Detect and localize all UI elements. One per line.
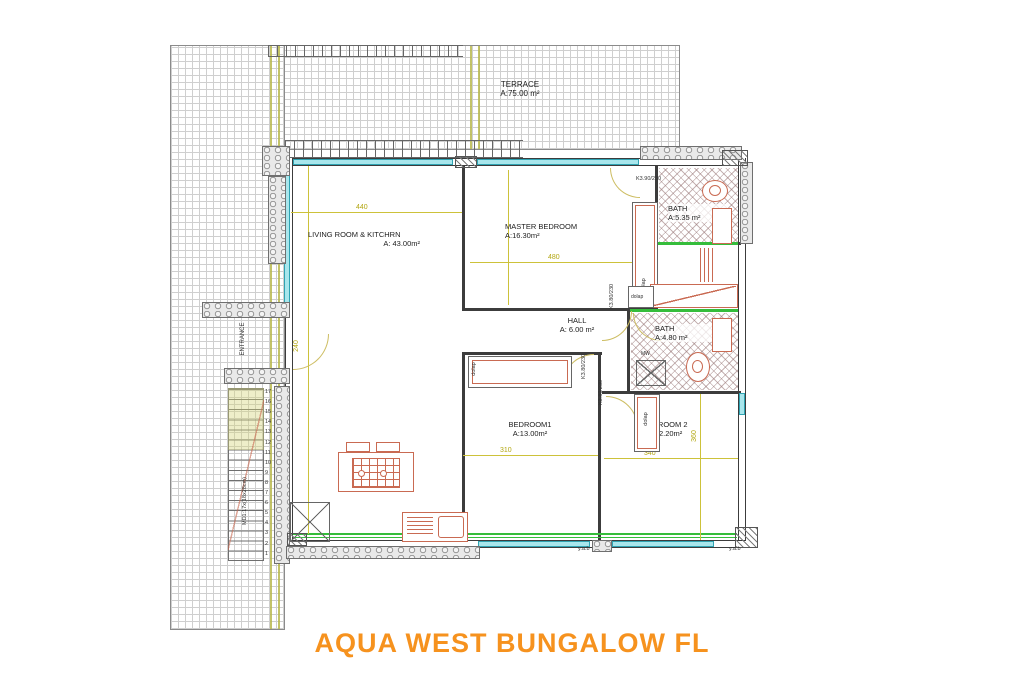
stair-step-number: 11 bbox=[265, 450, 275, 456]
stone-entrance-top bbox=[202, 302, 290, 318]
yab-label-left: y.a.b bbox=[578, 546, 590, 552]
dim-living-width: 440 bbox=[356, 204, 368, 212]
bedroom1-name: BEDROOM1 bbox=[488, 420, 572, 429]
column-hatch bbox=[735, 527, 758, 548]
dim-line bbox=[700, 394, 701, 540]
stair-step-number: 17 bbox=[265, 389, 275, 395]
stair-spec-label: MD1:17x(18x28cm) bbox=[242, 466, 248, 536]
burner-icon bbox=[358, 470, 365, 477]
wardrobe-bedroom2-label: dolap bbox=[643, 407, 649, 431]
door-spec-a: K3.80/230 bbox=[609, 273, 615, 309]
yab-label-right: y.a.b bbox=[729, 546, 741, 552]
living-room-name: LIVING ROOM & KITCHRN bbox=[308, 230, 420, 239]
door-arc-bath1 bbox=[610, 168, 640, 198]
stair-step-number: 4 bbox=[265, 520, 275, 526]
hall-area: A: 6.00 m² bbox=[542, 325, 612, 334]
sill-line bbox=[293, 533, 737, 535]
living-room-label: LIVING ROOM & KITCHRN A: 43.00m² bbox=[308, 230, 420, 248]
kitchen-sink-icon bbox=[438, 516, 464, 538]
pergola-rafters bbox=[285, 140, 523, 158]
stone-wall-bottom bbox=[286, 546, 480, 559]
mw-label: MW bbox=[641, 351, 650, 357]
stair-step-number: 2 bbox=[265, 541, 275, 547]
bedroom1-label: BEDROOM1 A:13.00m² bbox=[488, 420, 572, 438]
terrace-name: TERRACE bbox=[468, 80, 572, 89]
chair-icon bbox=[346, 442, 370, 452]
column-hatch bbox=[722, 150, 748, 166]
fridge-icon bbox=[290, 502, 330, 542]
dim-line bbox=[463, 455, 598, 456]
sill-line-bath2 bbox=[630, 309, 738, 312]
dim-line bbox=[470, 262, 655, 263]
column-hatch bbox=[455, 156, 477, 168]
door-spec-b: K3.80/230 bbox=[581, 343, 587, 379]
stair-step-number: 13 bbox=[265, 429, 275, 435]
bath2-name: BATH bbox=[655, 324, 715, 333]
door-spec-top: K3.90/230 bbox=[636, 176, 661, 182]
terrace-area: A:75.00 m² bbox=[468, 89, 572, 98]
door-spec-c: K3.80/230 bbox=[598, 369, 604, 405]
plan-title: AQUA WEST BUNGALOW FL bbox=[0, 628, 1024, 659]
dim-master-width: 480 bbox=[548, 254, 560, 262]
stair-step-number: 9 bbox=[265, 470, 275, 476]
door-arc-entrance bbox=[293, 334, 329, 370]
stair-numbers: 1716151413121110987654321 bbox=[265, 389, 277, 561]
stone-entrance-bottom bbox=[224, 368, 290, 384]
terrace-label: TERRACE A:75.00 m² bbox=[468, 80, 572, 98]
toilet-bowl-icon bbox=[692, 360, 703, 373]
window-bath2-right bbox=[739, 393, 745, 415]
floor-plan: TERRACE A:75.00 m² 440 480 bbox=[0, 0, 1024, 684]
stair-step-number: 1 bbox=[265, 551, 275, 557]
shower-tray-icon bbox=[712, 208, 732, 244]
stone-pier-bottom bbox=[592, 540, 612, 552]
wall-living-master bbox=[462, 166, 465, 311]
wall-bath2-bedroom2 bbox=[602, 391, 741, 394]
master-bedroom-label: MASTER BEDROOM A:16.30m² bbox=[505, 222, 615, 240]
dim-line bbox=[291, 212, 462, 213]
entrance-label: ENTRANCE bbox=[240, 314, 246, 364]
living-room-area: A: 43.00m² bbox=[308, 239, 420, 248]
stone-wall-bath-right bbox=[740, 162, 753, 244]
washbasin-icon bbox=[712, 318, 732, 352]
wardrobe-bedroom1-inner bbox=[472, 360, 568, 384]
stair-step-number: 15 bbox=[265, 409, 275, 415]
stair-step-number: 16 bbox=[265, 399, 275, 405]
sink-bowl-icon bbox=[709, 185, 721, 196]
stone-wall-left bbox=[268, 176, 286, 264]
bath2-label: BATH A:4.80 m² bbox=[655, 324, 715, 342]
drainboard-icon bbox=[407, 517, 433, 537]
shower-cabin-icon bbox=[636, 360, 666, 386]
stair-step-number: 7 bbox=[265, 490, 275, 496]
sill-line bbox=[293, 537, 737, 538]
stone-wall-corner bbox=[262, 146, 290, 176]
hall-name: HALL bbox=[542, 316, 612, 325]
bathtub-diagonal bbox=[652, 286, 736, 306]
pergola-rafters-top bbox=[268, 45, 463, 57]
stair-step-number: 10 bbox=[265, 460, 275, 466]
burner-icon bbox=[380, 470, 387, 477]
radiator-icon bbox=[700, 248, 716, 282]
hall-label: HALL A: 6.00 m² bbox=[542, 316, 612, 334]
wardrobe-bedroom1-label: dolap bbox=[471, 357, 477, 381]
chair-icon bbox=[376, 442, 400, 452]
window-bedroom1-bottom bbox=[478, 541, 590, 547]
bedroom1-area: A:13.00m² bbox=[488, 429, 572, 438]
stair-step-number: 14 bbox=[265, 419, 275, 425]
master-bedroom-name: MASTER BEDROOM bbox=[505, 222, 615, 231]
stair-step-number: 8 bbox=[265, 480, 275, 486]
dim-line bbox=[604, 458, 738, 459]
stair-step-number: 3 bbox=[265, 530, 275, 536]
window-living-top bbox=[293, 159, 453, 165]
dim-bedroom1-width: 310 bbox=[500, 447, 512, 455]
wardrobe-bath-label: dolap bbox=[631, 294, 643, 300]
master-bedroom-area: A:16.30m² bbox=[505, 231, 615, 240]
stair-step-number: 5 bbox=[265, 510, 275, 516]
stair-step-number: 6 bbox=[265, 500, 275, 506]
window-master-top bbox=[477, 159, 639, 165]
bath2-area: A:4.80 m² bbox=[655, 333, 715, 342]
stair-step-number: 12 bbox=[265, 440, 275, 446]
window-bedroom2-bottom bbox=[612, 541, 714, 547]
